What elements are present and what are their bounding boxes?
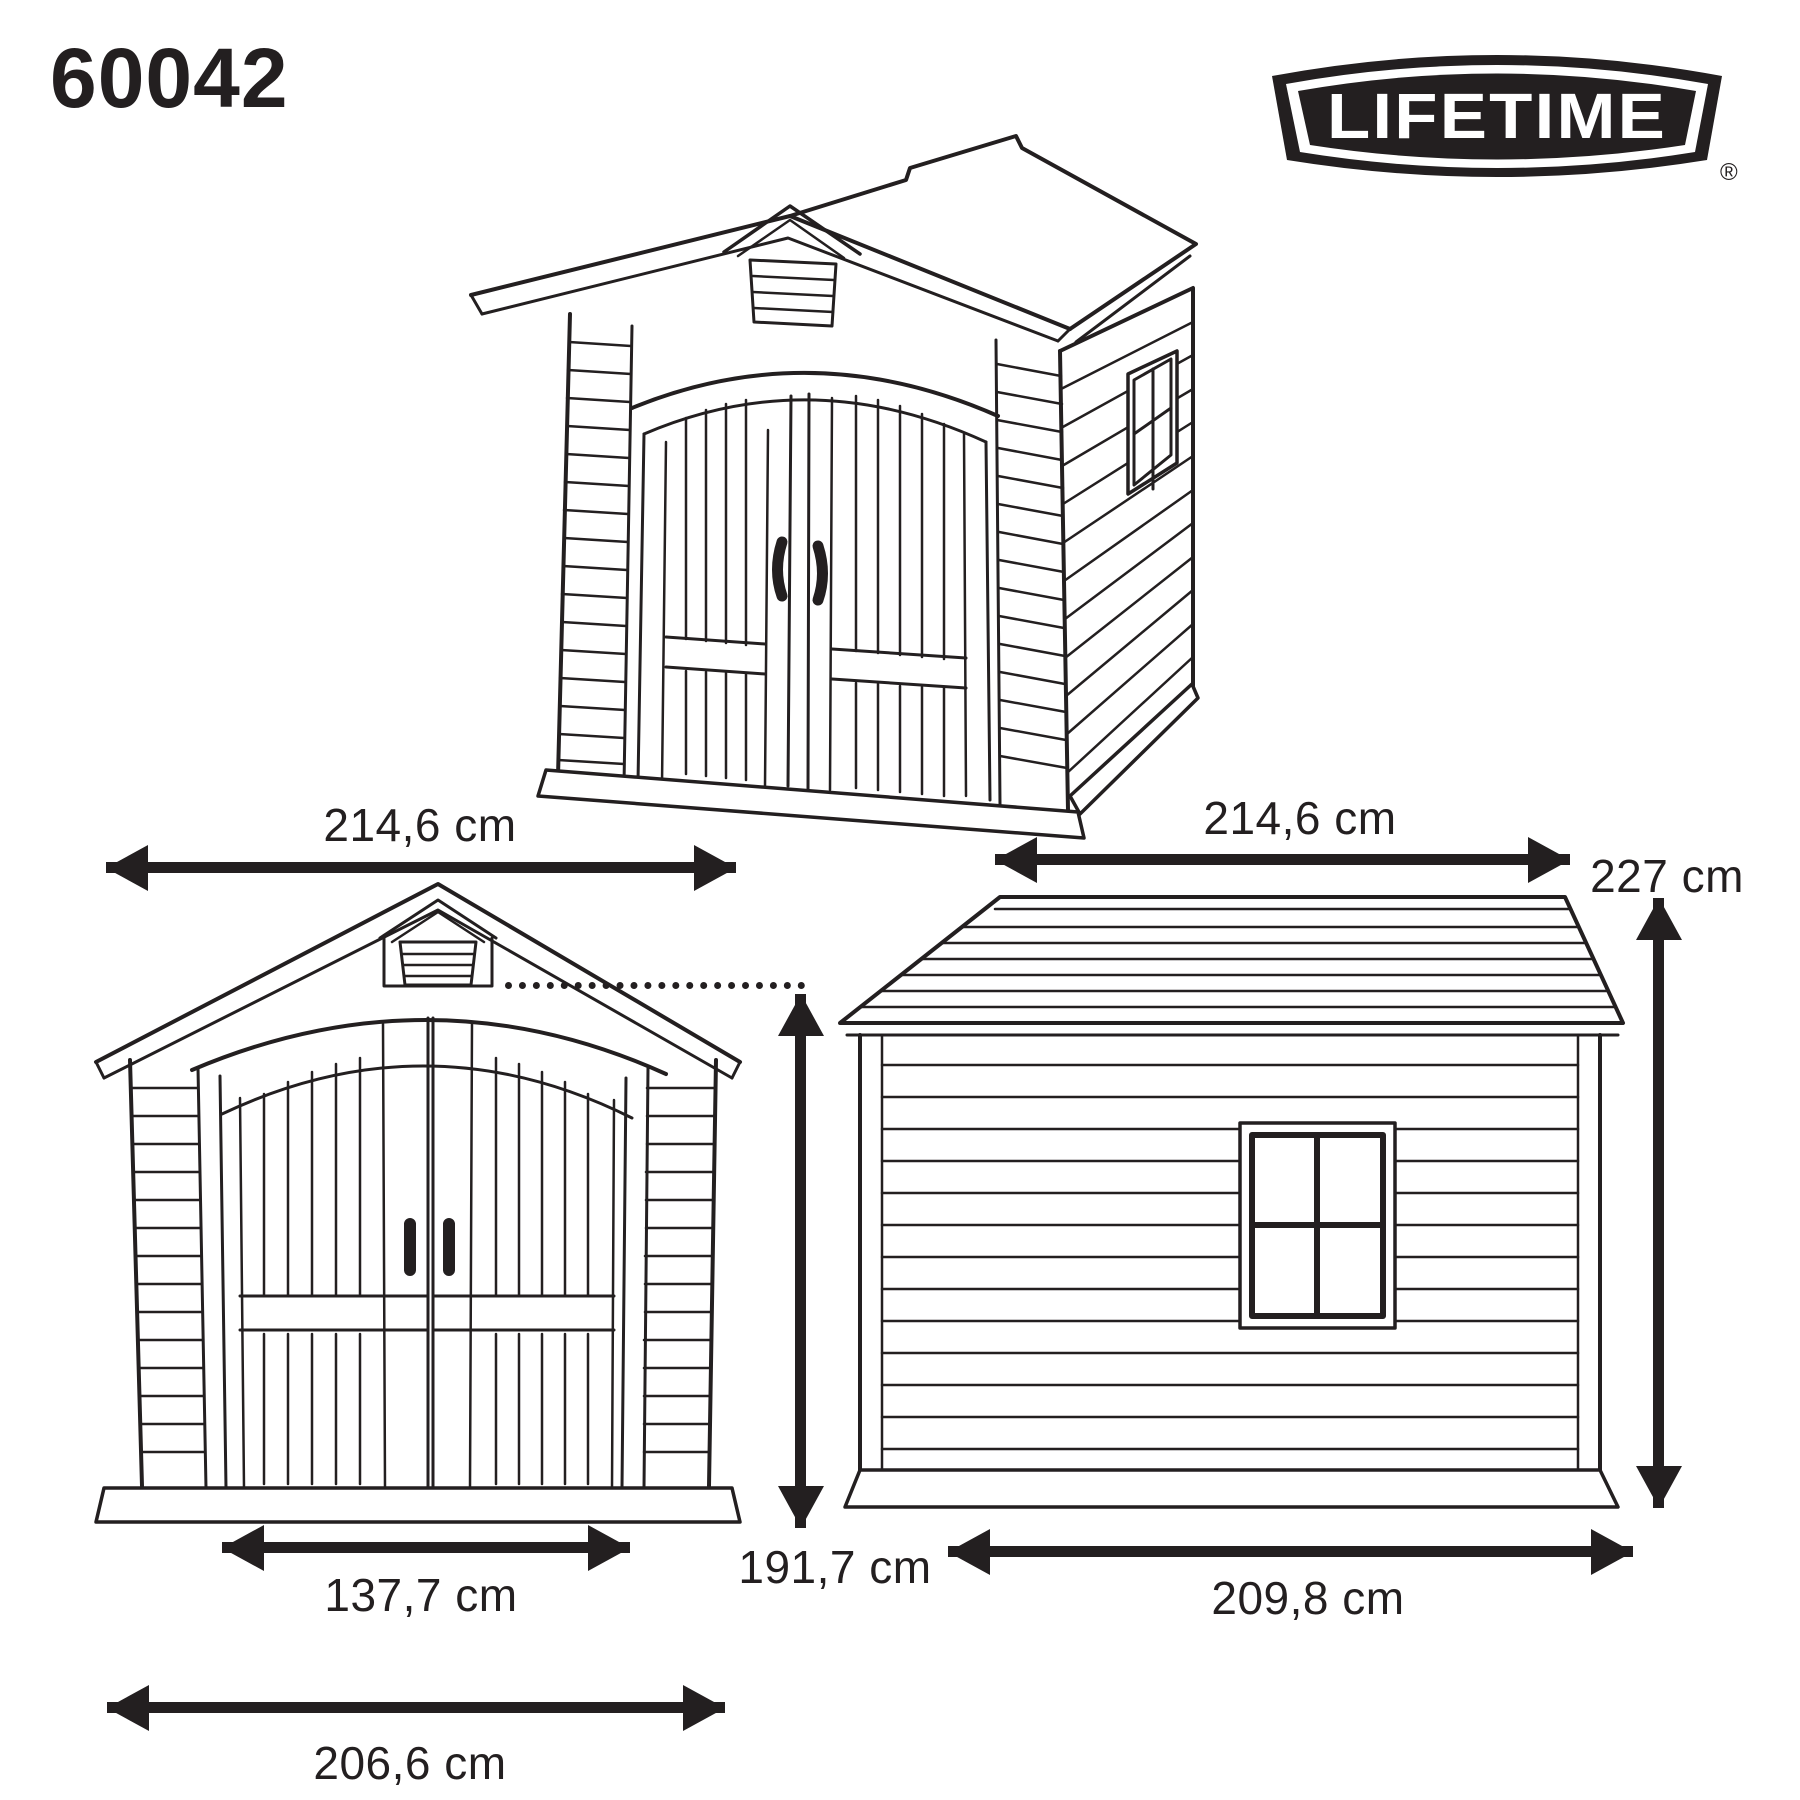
front-roof-inner xyxy=(104,910,732,1078)
dim-label-side-width-top: 214,6 cm xyxy=(1100,791,1500,845)
dim-arrow-side-width-top xyxy=(995,854,1570,865)
iso-door-frame xyxy=(638,434,990,800)
dim-arrow-side-base-width xyxy=(948,1546,1633,1557)
dim-label-total-height: 227 cm xyxy=(1552,849,1782,903)
dim-arrow-front-base-width xyxy=(107,1702,725,1713)
dotted-reference-line xyxy=(505,982,805,989)
iso-right-corner-trim xyxy=(996,340,1068,810)
iso-fascia-caps xyxy=(471,295,1070,341)
front-gable-vent xyxy=(380,900,496,986)
dim-label-front-base-width: 206,6 cm xyxy=(260,1736,560,1790)
front-view-drawing xyxy=(88,872,748,1532)
logo-brand-text: LIFETIME xyxy=(1327,80,1667,152)
lifetime-logo: LIFETIME ® xyxy=(1262,42,1737,202)
side-roof xyxy=(840,897,1623,1035)
dim-arrow-wall-height xyxy=(795,994,806,1528)
iso-right-door xyxy=(808,394,966,796)
front-right-corner-trim xyxy=(644,1060,716,1488)
side-window xyxy=(1240,1123,1395,1328)
dim-arrow-total-height xyxy=(1653,898,1664,1508)
iso-header-arch xyxy=(632,373,998,416)
side-wall xyxy=(860,1035,1600,1470)
dim-label-door-width: 137,7 cm xyxy=(271,1568,571,1622)
iso-view-drawing xyxy=(420,96,1210,856)
iso-left-corner-trim xyxy=(558,314,632,784)
iso-door-handles xyxy=(778,542,823,600)
iso-left-door xyxy=(662,396,791,786)
dim-label-wall-height: 191,7 cm xyxy=(705,1540,965,1594)
iso-door-arch xyxy=(644,400,986,442)
diagram-canvas: 60042 LIFETIME ® xyxy=(0,0,1800,1800)
side-view-drawing xyxy=(835,893,1635,1513)
front-left-corner-trim xyxy=(130,1060,206,1488)
dim-arrow-front-width-top xyxy=(106,862,736,873)
dim-label-side-base-width: 209,8 cm xyxy=(1158,1571,1458,1625)
side-base xyxy=(845,1470,1618,1507)
front-base xyxy=(96,1488,740,1522)
dim-label-front-width-top: 214,6 cm xyxy=(220,798,620,852)
front-roof-outer xyxy=(96,884,740,1062)
registered-mark: ® xyxy=(1720,159,1738,186)
front-right-door xyxy=(433,1022,614,1488)
model-number: 60042 xyxy=(50,30,289,127)
dim-arrow-door-width xyxy=(222,1542,630,1553)
